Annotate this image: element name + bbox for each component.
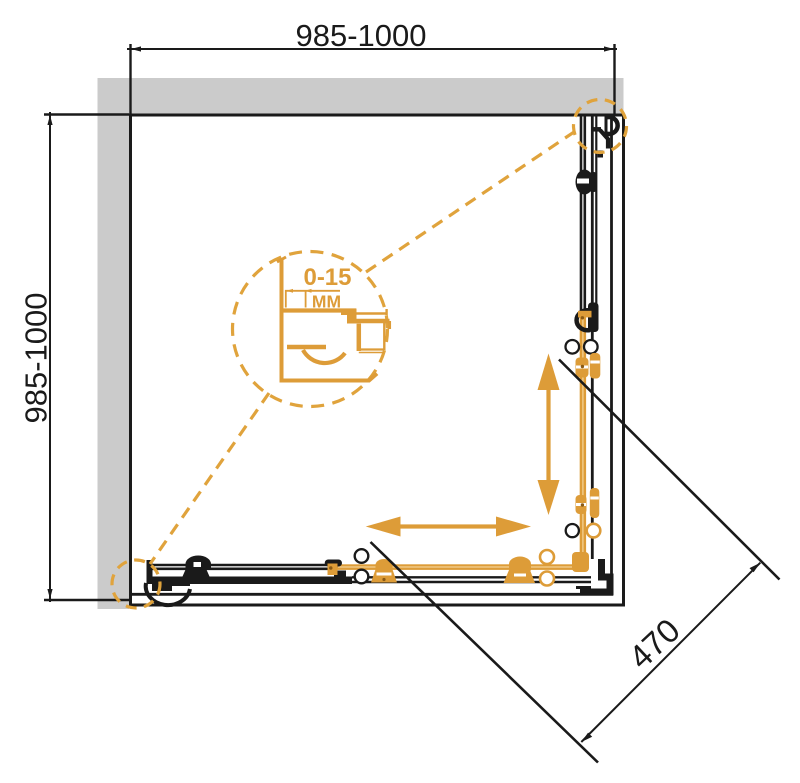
svg-text:0-15: 0-15 [303,264,351,291]
svg-text:985-1000: 985-1000 [19,292,54,423]
svg-text:MM: MM [312,292,341,312]
svg-text:985-1000: 985-1000 [295,18,426,53]
